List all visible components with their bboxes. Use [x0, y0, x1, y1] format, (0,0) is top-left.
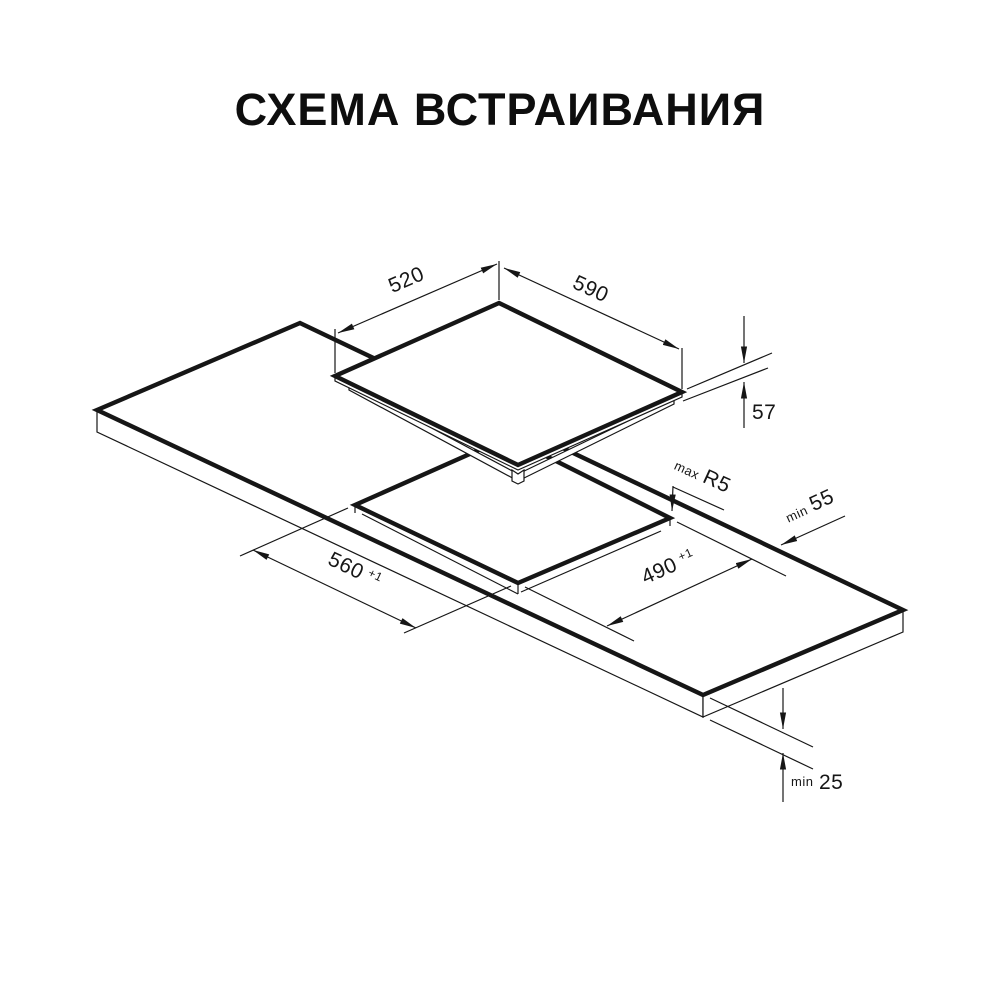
extension-line — [710, 698, 813, 747]
extension-line — [710, 720, 813, 769]
installation-diagram-page: СХЕМА ВСТРАИВАНИЯ — [0, 0, 1000, 1000]
dimension-label-57: 57 — [752, 401, 776, 424]
hob-base-corner-notch — [512, 470, 524, 484]
dimension-label-25: min25 — [791, 771, 843, 794]
dimension-hob-height: 57 — [683, 316, 776, 428]
dimension-label-520: 520 — [385, 262, 428, 298]
installation-diagram-svg: 560+1 490+1 maxR5 min55 min25 — [0, 0, 1000, 1000]
dimension-rear-clearance: min55 — [781, 485, 845, 545]
dimension-label-55: min55 — [781, 485, 838, 527]
